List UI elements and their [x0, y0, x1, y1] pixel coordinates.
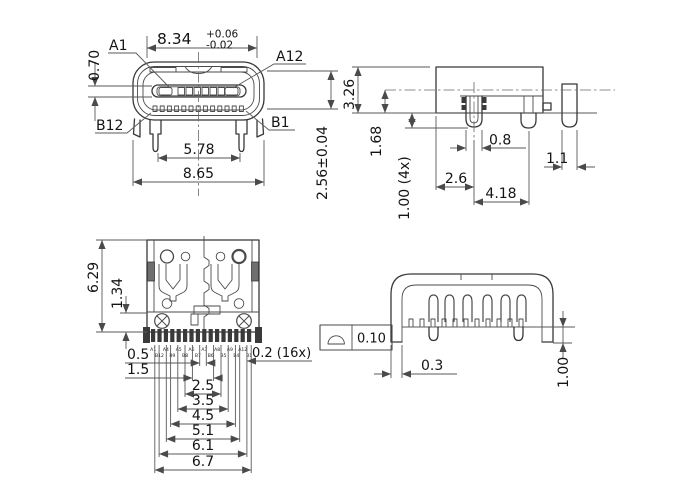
technical-drawing: 8.34 +0.06 -0.02 A1 A12 B12 B1 0.70 5.78… [0, 0, 690, 500]
pin-designator: A1 [150, 347, 156, 353]
pin-label-a12: A12 [276, 49, 303, 65]
pin-designators-row1: A1 A4 A5 A6 A7 A8 A9 A12 [150, 347, 247, 353]
dim-opening-height: 2.56±0.04 [315, 126, 331, 200]
front-tongue [152, 85, 246, 97]
front-view: 8.34 +0.06 -0.02 A1 A12 B12 B1 0.70 5.78… [87, 29, 338, 201]
pin-designator: A8 [214, 347, 220, 353]
dim-leg-span: 5.78 [183, 142, 214, 158]
side-dimensions [352, 67, 595, 205]
pin-designators-row2: B12 B9 B8 B7 B6 B5 B4 B1 [155, 353, 252, 359]
dim-pitch-51: 5.1 [192, 423, 214, 439]
dim-solder-zone: 1.34 [110, 278, 126, 309]
contact-pad-left [159, 88, 172, 96]
knurl-boss-right [237, 314, 252, 329]
side-flange-left [134, 119, 141, 137]
plan-view: A1 A4 A5 A6 A7 A8 A9 A12 B12 B9 B8 B7 B6… [86, 236, 312, 473]
drawing-canvas: 8.34 +0.06 -0.02 A1 A12 B12 B1 0.70 5.78… [0, 0, 690, 500]
pin-designator: B6 [208, 353, 214, 359]
smt-pins [151, 329, 251, 342]
dim-pitch-61: 6.1 [192, 438, 214, 454]
pin-end-block-left [143, 327, 150, 343]
gdt-frame: 0.10 [320, 325, 392, 350]
contact-comb [409, 319, 523, 327]
pin-designator: B4 [233, 353, 239, 359]
dim-leg-protrusion: 1.00 (4x) [397, 156, 413, 220]
dim-shell-leg-width: 0.3 [421, 358, 443, 374]
gdt-tolerance: 0.10 [357, 332, 386, 347]
dim-pitch-05: 0.5 [127, 347, 149, 363]
rear-contacts [429, 295, 526, 322]
hole-small-right [216, 252, 225, 261]
rear-through-pins [429, 327, 523, 341]
top-spring-right [221, 68, 247, 73]
profile-of-surface-icon [328, 336, 344, 344]
dim-leg-below-seating: 1.00 [556, 357, 572, 388]
contact-pad-right [225, 88, 238, 96]
latch-spring-right [211, 264, 239, 301]
knurl-boss-left [155, 314, 170, 329]
dim-pitch-25: 2.5 [192, 378, 214, 394]
dim-pitch-67: 6.7 [192, 454, 214, 470]
side-view: 3.26 1.68 1.00 (4x) 0.8 1.1 2.6 4.18 [342, 67, 615, 220]
hole-large-left [161, 250, 174, 263]
dim-side-leg-width: 1.1 [546, 151, 568, 167]
side-tab [543, 103, 551, 110]
center-tab-stem [191, 314, 198, 325]
pin-end-block-right [255, 327, 262, 343]
pin-designator: A6 [189, 347, 195, 353]
pin-label-b1: B1 [271, 115, 290, 131]
rail-block-right [252, 262, 259, 281]
extension-lines [391, 327, 572, 378]
dim-front-leg-width: 0.8 [489, 133, 511, 149]
pin-designator: A5 [176, 347, 182, 353]
hole-lower-left [162, 299, 172, 309]
rear-view: 0.10 0.3 1.00 [320, 274, 575, 388]
extension-lines [352, 67, 595, 205]
hole-small-left [181, 252, 190, 261]
dim-pitch-35: 3.5 [192, 393, 214, 409]
rear-through-leg [521, 113, 536, 128]
dim-leg-pitch: 4.18 [485, 186, 516, 202]
pin-label-b12: B12 [96, 118, 123, 134]
dim-edge-to-leg: 2.6 [445, 171, 467, 187]
dim-center-to-base: 1.68 [369, 126, 385, 157]
dim-pin-width: 0.2 (16x) [252, 346, 311, 361]
dim-body-height: 3.26 [342, 79, 358, 110]
front-leg-left [150, 120, 161, 152]
side-flange-right [257, 119, 264, 137]
rear-through-leg-hidden [524, 96, 533, 113]
dim-shell-width-tol-lower: -0.02 [206, 40, 233, 52]
pin-label-a1: A1 [109, 38, 127, 54]
plan-section-line [204, 236, 209, 334]
dim-overall-width: 8.65 [183, 166, 214, 182]
hole-lower-right [234, 299, 244, 309]
dim-pitch-45: 4.5 [192, 408, 214, 424]
contact-boxes [178, 88, 225, 96]
shell-seam-ticks [461, 274, 492, 280]
plan-body [147, 240, 259, 332]
dim-tongue-offset: 0.70 [87, 50, 103, 81]
latch-spring-left [159, 264, 187, 301]
pin-designator: B12 [155, 353, 164, 359]
hole-large-right [233, 250, 246, 263]
dim-pitch-15: 1.5 [127, 362, 149, 378]
rail-block-left [148, 262, 155, 281]
dim-shell-width: 8.34 [157, 30, 192, 48]
shell-side-leg [562, 84, 577, 127]
front-leg-right [236, 120, 247, 152]
dim-body-length: 6.29 [86, 262, 102, 293]
